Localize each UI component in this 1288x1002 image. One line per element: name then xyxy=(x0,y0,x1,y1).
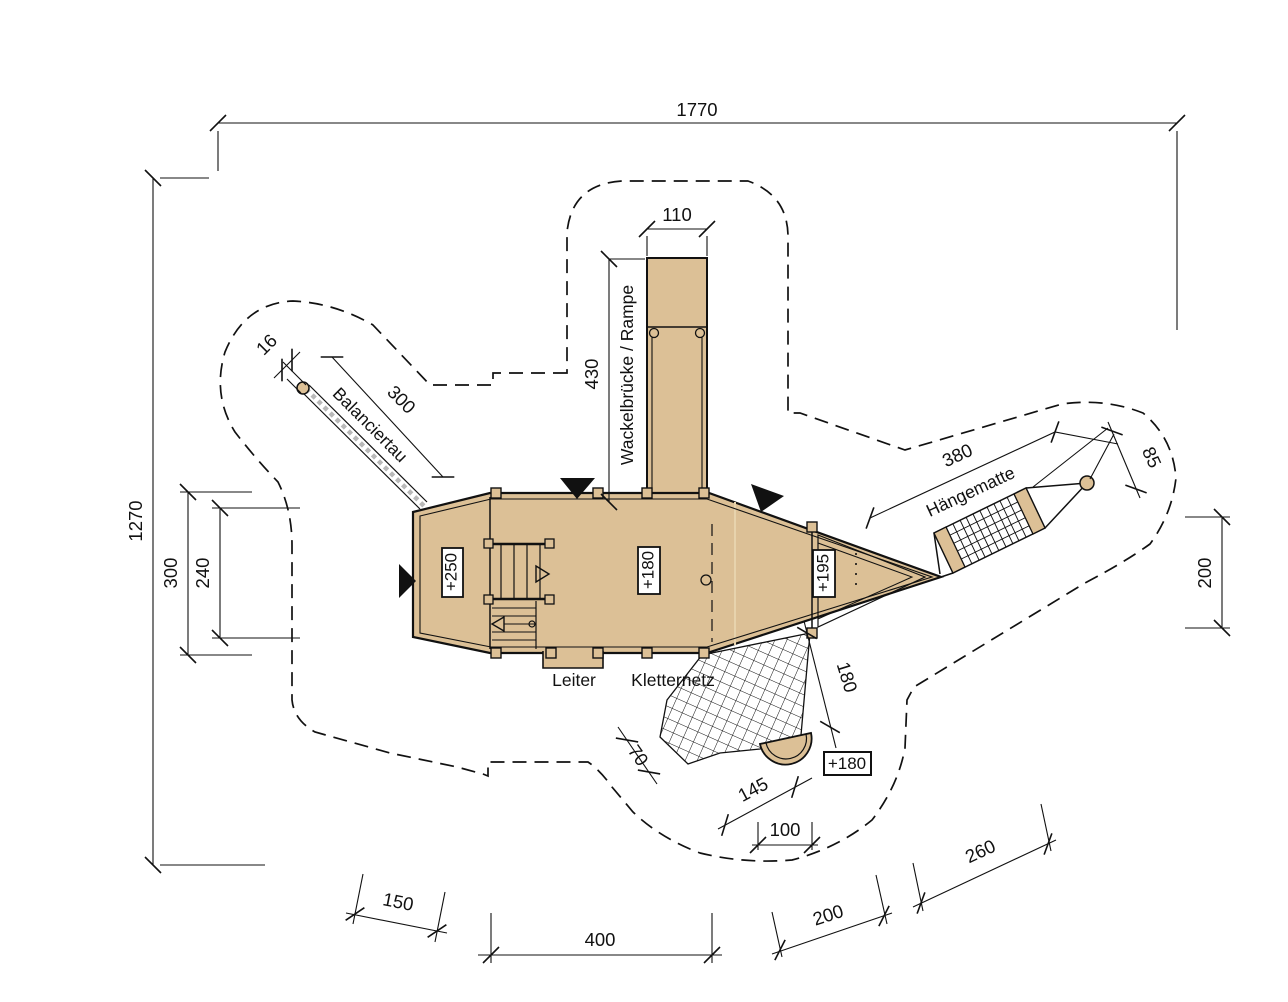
main-deck: +250 +180 +195 xyxy=(399,478,941,668)
plan-drawing: +250 +180 +195 xyxy=(0,0,1288,1002)
wobble-bridge-ramp xyxy=(647,258,707,497)
net-platform-elevation-tag: +180 xyxy=(824,752,871,775)
bridge-post-left xyxy=(650,329,659,338)
label-climbing-net: Kletternetz xyxy=(631,670,715,690)
dim-bridge-width: 110 xyxy=(662,204,692,225)
hammock-post xyxy=(1080,476,1094,490)
elevation-main-deck: +180 xyxy=(638,551,657,589)
label-bridge: Wackelbrücke / Rampe xyxy=(617,285,637,465)
dim-hammock-offset: 85 xyxy=(1138,443,1166,471)
dim-overall-width: 1770 xyxy=(676,99,717,120)
label-ladder: Leiter xyxy=(552,670,596,690)
rope-anchor-post xyxy=(297,382,309,394)
dim-tower-depth-inner: 240 xyxy=(192,558,213,589)
dim-rope-diameter: 16 xyxy=(252,330,281,359)
dim-rope-length: 300 xyxy=(383,381,420,418)
dim-bottom-right-offset-2: 260 xyxy=(962,835,999,867)
dim-net-width: 70 xyxy=(624,741,653,770)
dim-platform-width: 100 xyxy=(770,819,801,840)
access-marker-right xyxy=(751,484,784,512)
dim-bottom-left-offset: 150 xyxy=(381,888,415,915)
elevation-tower: +250 xyxy=(441,553,460,591)
dim-bottom-right-offset-1: 200 xyxy=(810,900,846,930)
dim-net-span: 145 xyxy=(734,773,771,806)
dim-bridge-length: 430 xyxy=(581,359,602,390)
dim-tower-depth-outer: 300 xyxy=(160,558,181,589)
dim-net-length: 180 xyxy=(833,659,862,695)
elevation-bow: +195 xyxy=(813,554,832,592)
playground-plan-sheet: +250 +180 +195 xyxy=(0,0,1288,1002)
bridge-post-right xyxy=(696,329,705,338)
dim-deck-length: 400 xyxy=(585,929,616,950)
dim-right-clearance: 200 xyxy=(1194,558,1215,589)
dim-overall-depth: 1270 xyxy=(125,500,146,541)
dim-hammock-length: 380 xyxy=(939,439,976,471)
elevation-net-platform: +180 xyxy=(828,754,866,773)
